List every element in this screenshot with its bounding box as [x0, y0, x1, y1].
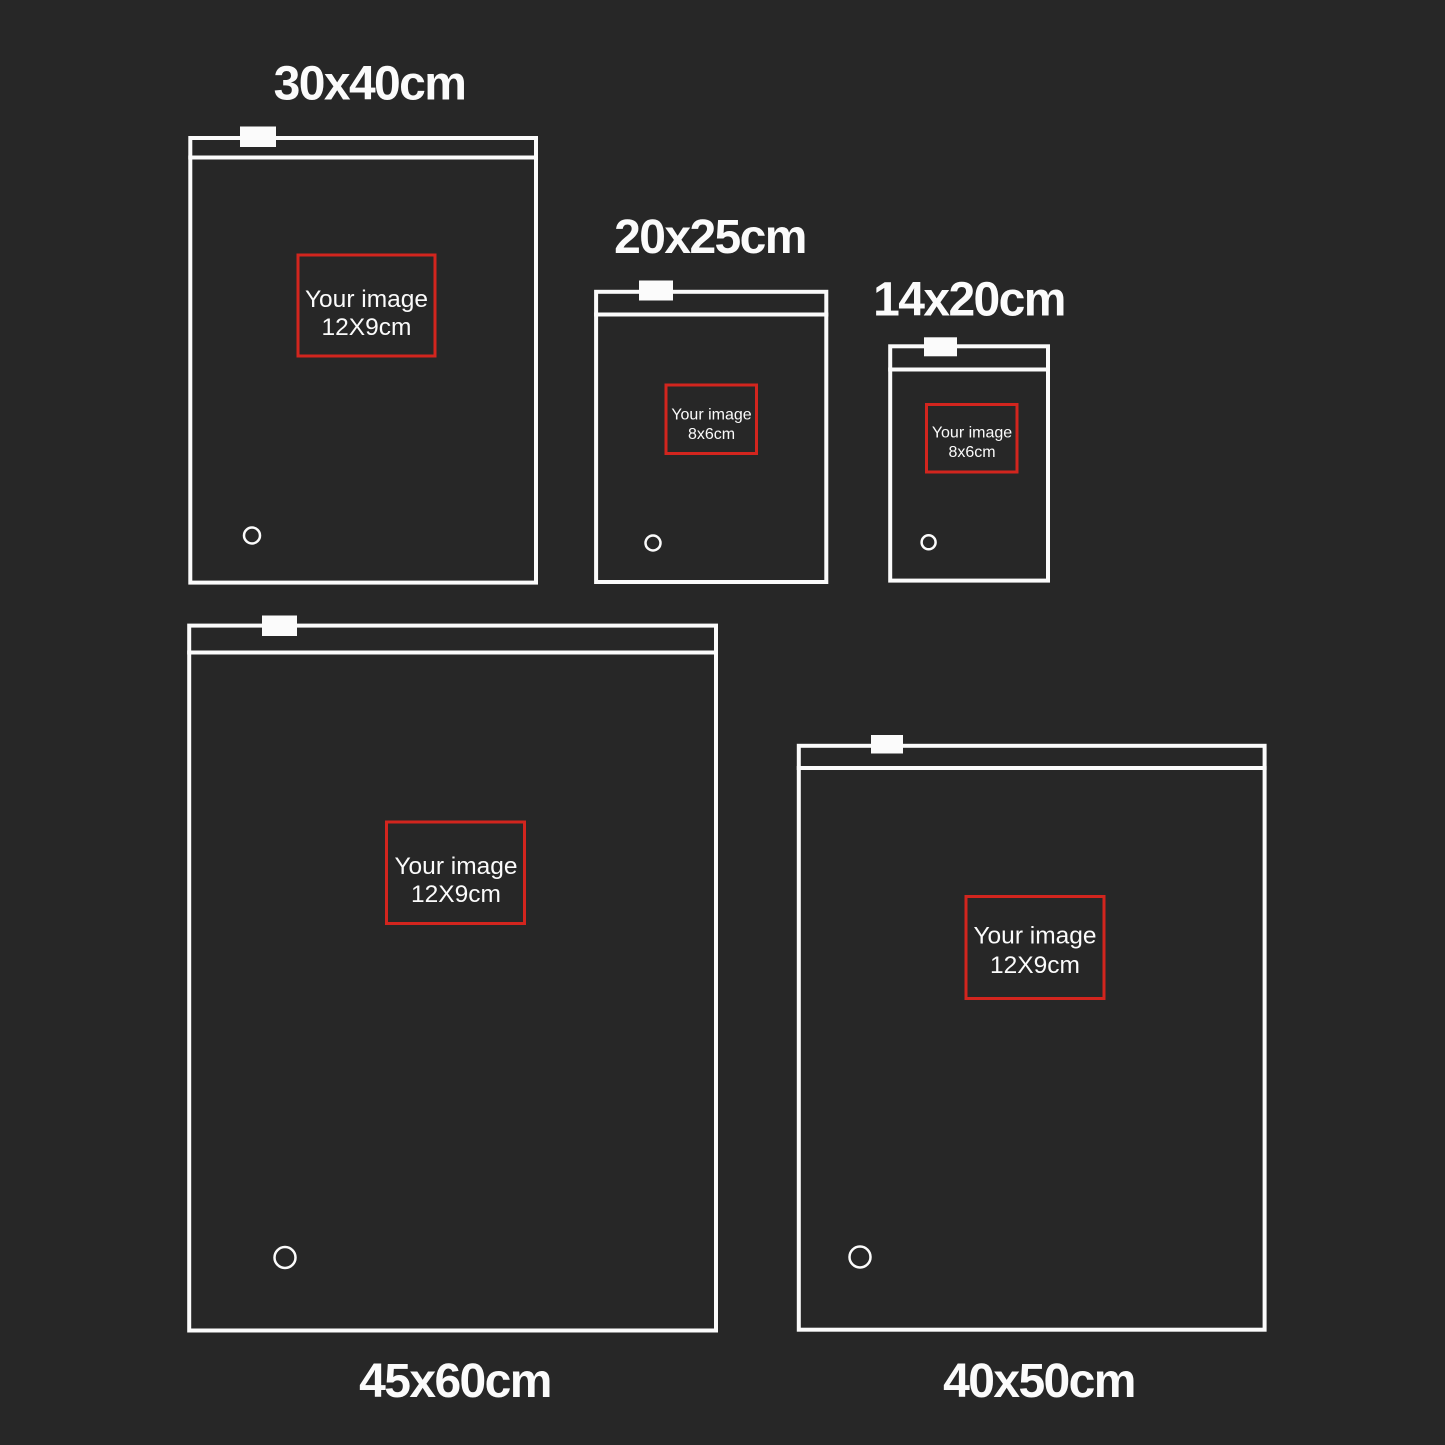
svg-text:Your image: Your image: [932, 425, 1012, 442]
svg-text:Your image: Your image: [671, 407, 751, 424]
svg-text:12X9cm: 12X9cm: [322, 314, 412, 341]
svg-text:45x60cm: 45x60cm: [359, 1355, 551, 1408]
svg-text:8x6cm: 8x6cm: [948, 444, 995, 461]
svg-text:Your image: Your image: [394, 853, 517, 880]
svg-text:14x20cm: 14x20cm: [873, 274, 1065, 327]
svg-text:30x40cm: 30x40cm: [274, 58, 466, 111]
svg-text:Your image: Your image: [973, 923, 1096, 950]
svg-text:Your image: Your image: [305, 286, 428, 313]
svg-text:20x25cm: 20x25cm: [614, 211, 806, 264]
svg-text:12X9cm: 12X9cm: [411, 881, 501, 908]
svg-text:8x6cm: 8x6cm: [688, 426, 735, 443]
svg-text:40x50cm: 40x50cm: [943, 1355, 1135, 1408]
svg-text:12X9cm: 12X9cm: [990, 952, 1080, 979]
